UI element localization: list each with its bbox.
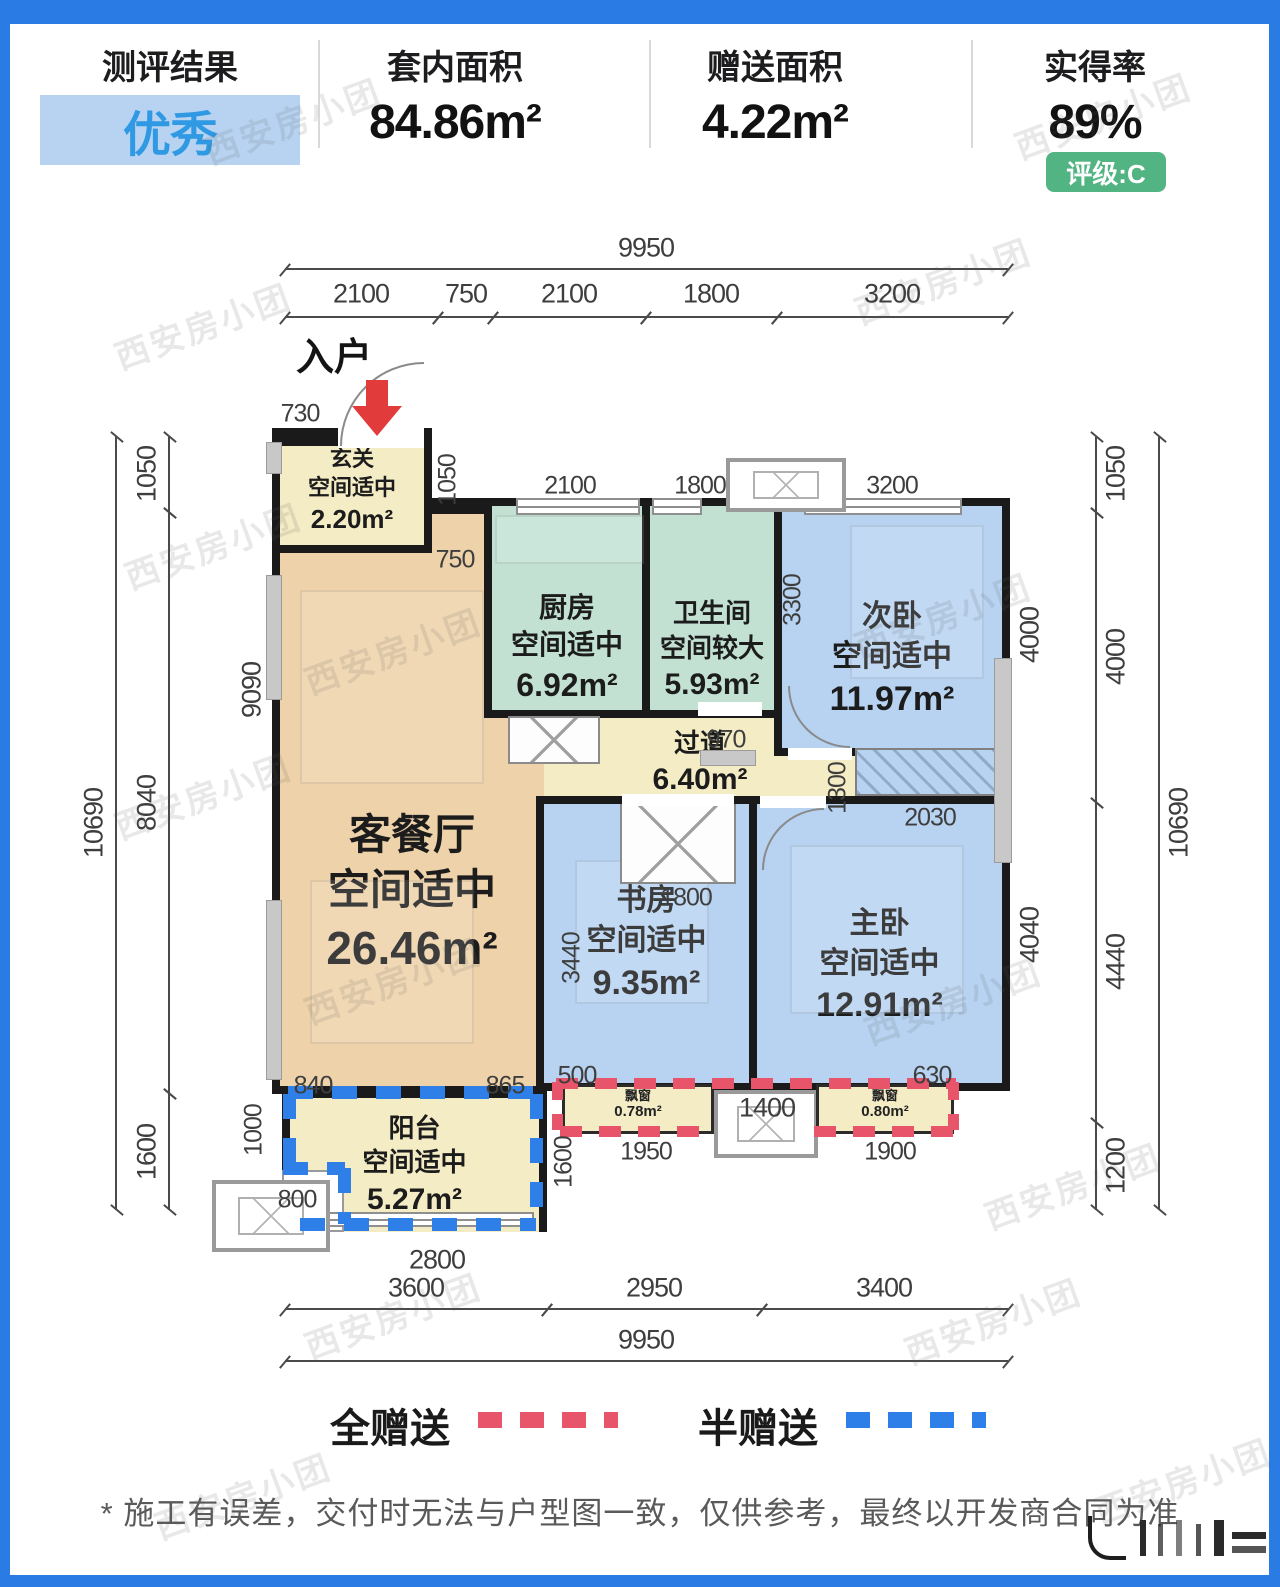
header-divider [318,40,320,148]
half-gift-dash-right [530,1094,543,1224]
dim-top-2: 2100 [541,279,597,310]
kitchen-counter-outline [495,515,644,564]
bay-window-label: 飘窗 [625,1089,651,1103]
wardrobe [855,748,1010,796]
dim-entry-side: 1050 [434,454,463,506]
room-assessment: 空间适中 [511,627,623,664]
half-gift-dash-step [283,1162,345,1175]
header-label-gift-area: 赠送面积 [655,40,895,89]
kitchen-door-opening [508,716,600,764]
header-value-result: 优秀 [40,95,300,165]
dim-line [168,437,170,513]
room-assessment: 空间适中 [362,1145,466,1179]
dim-line [115,437,117,1210]
dim-line [1095,437,1097,513]
dim-top-0: 2100 [333,279,389,310]
dim-bay2: 1900 [864,1138,916,1167]
room-bathroom: 卫生间 空间较大 5.93m² [642,498,782,718]
master-door-gap [760,796,826,808]
dim-inner-top-0: 2100 [544,472,596,501]
room-name: 卫生间 [673,596,751,630]
dim-left-1: 8040 [132,775,163,831]
dim-living-side: 3440 [558,932,587,984]
header-divider [649,40,651,148]
legend-full-gift-label: 全赠送 [330,1396,450,1454]
room-assessment: 空间较大 [660,631,764,665]
dim-840: 840 [294,1072,333,1101]
dim-865: 865 [486,1072,525,1101]
bay-window-area: 0.80m² [861,1103,909,1121]
legend-half-gift-label: 半赠送 [698,1396,818,1454]
dim-line [285,268,1008,270]
dim-line [777,316,1008,318]
room-name: 玄关 [330,444,374,473]
ac-unit-top [726,458,846,512]
frame-left [0,0,10,1587]
entrance-arrow-icon [366,380,388,406]
bathroom-door-gap [698,702,762,716]
dim-study-door: 1800 [660,884,712,913]
dim-balcony-right: 1600 [550,1136,579,1188]
dim-bottom-1: 2950 [626,1273,682,1304]
dining-table-outline [310,880,474,1044]
study-door-opening [620,804,736,884]
watermark: 西安房小团 [107,270,298,379]
room-name: 阳台 [388,1111,440,1145]
dim-right-2: 4440 [1101,934,1132,990]
study-door-gap [622,794,734,806]
room-area: 2.20m² [311,502,393,536]
header-label-result: 测评结果 [50,40,290,89]
sofa-outline [300,590,484,784]
cropped-logo-mark [1232,1532,1266,1539]
cropped-logo-mark [1158,1524,1163,1556]
header-label-ratio: 实得率 [975,40,1215,89]
dim-top-total: 9950 [618,233,674,264]
room-area: 6.92m² [516,664,617,706]
dim-right-1: 4000 [1101,629,1132,685]
window-sill [266,442,282,474]
watermark: 西安房小团 [897,1265,1088,1374]
dim-bottom-total: 9950 [618,1325,674,1356]
room-name: 客餐厅 [349,807,475,862]
header-value-gift-area: 4.22m² [645,95,905,150]
header-divider [971,40,973,148]
dim-ac: 1400 [739,1093,795,1124]
header-value-ratio: 89% [965,95,1225,150]
floorplan-evaluation-card: 西安房小团 西安房小团 西安房小团 西安房小团 西安房小团 西安房小团 西安房小… [0,0,1280,1587]
dim-balcony-bottom: 2800 [409,1245,465,1276]
entrance-label: 入户 [296,326,372,381]
dim-bottom-0: 3600 [388,1273,444,1304]
window-sill [266,575,282,700]
half-gift-dash-bottom [300,1218,536,1231]
entrance-arrow-icon [352,406,402,436]
dim-line [285,1360,1008,1362]
dim-line [493,316,646,318]
dim-bed2-inner: 3300 [779,574,808,626]
dim-inner-top-2: 3200 [866,472,918,501]
full-gift-dash-bottom [814,1126,954,1137]
dim-left-inner: 9090 [237,662,268,718]
bed-outline [850,525,984,679]
legend-half-gift-swatch [846,1412,986,1428]
room-name: 厨房 [539,590,595,627]
dim-line [646,316,777,318]
dim-bay1: 1950 [620,1138,672,1167]
dim-top-1: 750 [445,279,487,310]
window-sill [994,658,1012,863]
dim-500: 500 [558,1062,597,1091]
bay-window-area: 0.78m² [614,1103,662,1121]
dim-balcony-step: 800 [278,1186,317,1215]
dim-left-2: 1600 [132,1124,163,1180]
bathroom-window [652,498,702,515]
dim-master-col: 4040 [1015,907,1046,963]
kitchen-window [516,498,640,515]
bay-window-label: 飘窗 [872,1089,898,1103]
dim-line [1158,437,1160,1210]
frame-right [1269,0,1280,1587]
bedroom2-door-gap [788,748,852,760]
dim-left-total: 10690 [79,788,110,858]
watermark: 西安房小团 [977,1130,1168,1239]
dim-line [168,1094,170,1210]
room-assessment: 空间适中 [308,473,396,502]
dim-wardrobe: 2030 [904,804,956,833]
dim-line [285,1308,547,1310]
dim-left-0: 1050 [132,446,163,502]
dim-line [438,316,493,318]
dim-line [1095,803,1097,1123]
dim-top-3: 1800 [683,279,739,310]
dim-line [285,316,438,318]
dim-line [1095,513,1097,803]
half-gift-dash-step [338,1168,351,1224]
dim-right-total: 10690 [1164,788,1195,858]
dim-bath-door: 970 [707,726,746,755]
dim-top-4: 3200 [864,279,920,310]
window-sill [266,900,282,1080]
header-label-inner-area: 套内面积 [335,40,575,89]
header-value-inner-area: 84.86m² [325,95,585,150]
dim-630: 630 [913,1062,952,1091]
dim-right-3: 1200 [1101,1138,1132,1194]
bed-outline [790,845,964,1014]
dim-balcony-side: 1000 [240,1104,269,1156]
frame-top [0,0,1280,24]
dim-hallway-top: 730 [281,400,320,429]
cropped-logo-mark [1214,1520,1224,1556]
dim-bottom-2: 3400 [856,1273,912,1304]
half-gift-dash-left [283,1094,296,1168]
dim-bed2-col: 4000 [1015,607,1046,663]
cropped-logo-mark [1140,1520,1146,1556]
cropped-logo-mark [1196,1524,1201,1556]
dim-line [547,1308,762,1310]
dim-line [762,1308,1008,1310]
dim-right-0: 1050 [1101,446,1132,502]
cropped-logo-mark [1232,1546,1266,1553]
frame-bottom [0,1575,1280,1587]
dim-line [168,513,170,1094]
dim-inner-top-1: 1800 [674,472,726,501]
room-area: 5.93m² [664,665,759,705]
full-gift-dash-bottom [560,1126,714,1137]
full-gift-dash-top [556,1078,956,1089]
dim-line [1095,1123,1097,1210]
dim-corridor-side: 1300 [824,762,853,814]
cropped-logo-mark [1176,1520,1182,1556]
cropped-logo-mark [1088,1516,1126,1560]
dim-entry-bottom: 750 [436,546,475,575]
legend-full-gift-swatch [478,1412,618,1428]
rating-badge: 评级:C [1046,152,1166,192]
